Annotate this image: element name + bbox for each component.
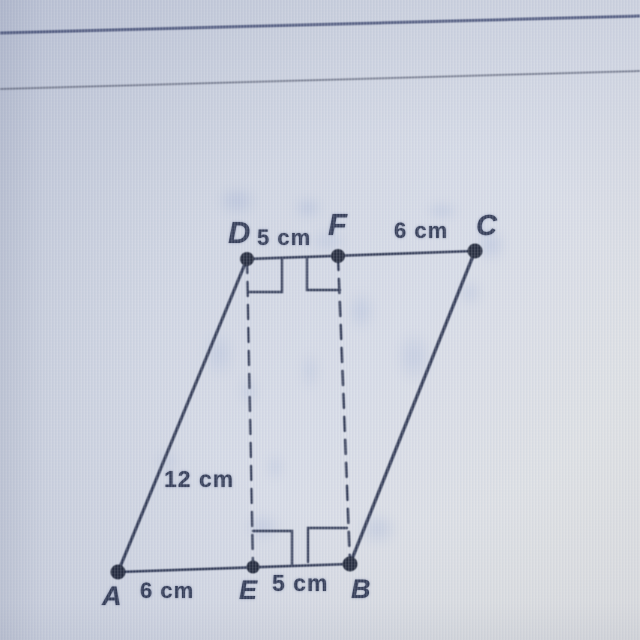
measurement-eb: 5 cm (272, 572, 328, 595)
vertex-dot-a (111, 565, 126, 580)
right-angle-mark-at-d (248, 258, 282, 292)
vertex-label-c: C (476, 212, 497, 241)
right-angle-mark-at-e (253, 531, 292, 565)
measurement-ad: 12 cm (164, 468, 234, 491)
measurement-ae: 6 cm (140, 580, 194, 602)
diagram-line-art (0, 0, 640, 640)
vertex-dot-e (247, 561, 260, 574)
vertex-label-d: D (228, 217, 250, 248)
vertex-dot-f (331, 249, 345, 263)
vertex-dot-b (343, 557, 358, 572)
vertex-label-a: A (102, 583, 122, 610)
measurement-fc: 6 cm (394, 220, 448, 242)
vertex-dot-d (240, 252, 254, 266)
height-fb-dashed-line (338, 256, 350, 564)
measurement-df: 5 cm (257, 227, 311, 249)
right-angle-mark-at-b (308, 528, 347, 562)
height-de-dashed-line (247, 259, 253, 567)
vertex-dot-c (468, 244, 483, 259)
top-rule-line (0, 16, 640, 33)
vertex-label-b: B (351, 576, 371, 603)
photographed-screen: D 5 cm F 6 cm C 12 cm A 6 cm E 5 cm B (0, 0, 640, 640)
side-bc-line (350, 251, 475, 564)
vertex-label-f: F (328, 209, 347, 240)
vertex-label-e: E (239, 577, 257, 604)
side-ad-line (118, 259, 247, 572)
second-rule-line (0, 71, 640, 89)
